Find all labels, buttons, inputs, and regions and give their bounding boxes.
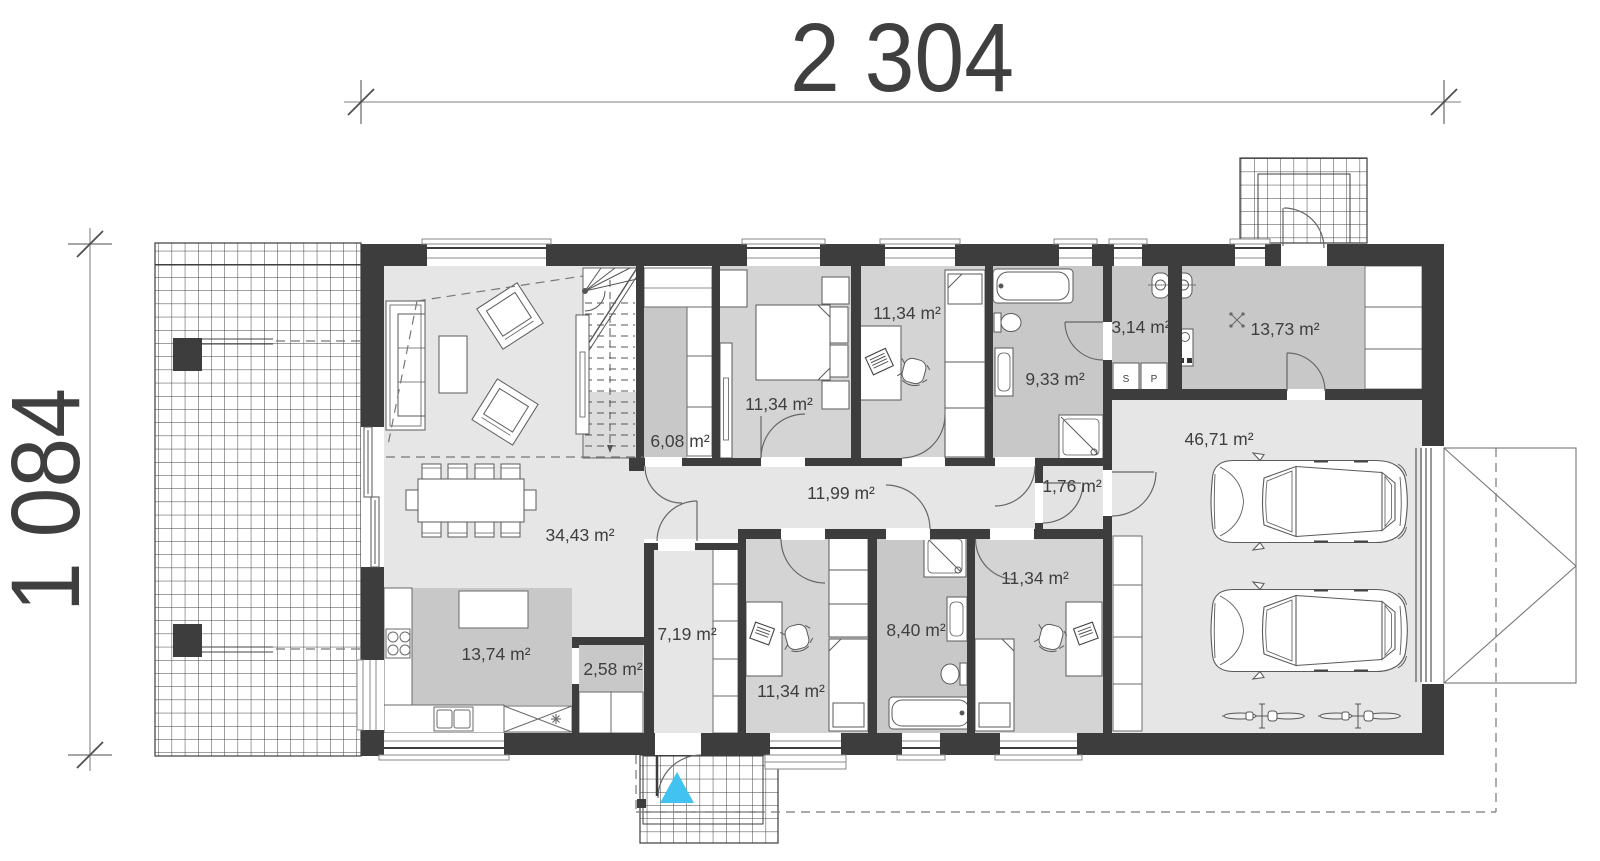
svg-text:11,34 m²: 11,34 m² — [1001, 568, 1069, 588]
svg-text:13,74 m²: 13,74 m² — [461, 644, 530, 664]
svg-text:S: S — [1123, 374, 1130, 385]
svg-text:11,34 m²: 11,34 m² — [873, 303, 941, 323]
svg-text:34,43 m²: 34,43 m² — [545, 525, 614, 545]
svg-text:11,34 m²: 11,34 m² — [757, 681, 825, 701]
svg-text:7,19 m²: 7,19 m² — [657, 624, 716, 644]
svg-text:9,33 m²: 9,33 m² — [1025, 369, 1084, 389]
svg-text:8,40 m²: 8,40 m² — [886, 620, 945, 640]
svg-text:P: P — [1151, 374, 1158, 385]
svg-text:11,99 m²: 11,99 m² — [807, 483, 875, 503]
svg-text:6,08 m²: 6,08 m² — [650, 431, 709, 451]
svg-text:2,58 m²: 2,58 m² — [583, 659, 642, 679]
svg-text:1 084: 1 084 — [0, 388, 100, 612]
svg-text:13,73 m²: 13,73 m² — [1250, 319, 1319, 339]
svg-text:1,76 m²: 1,76 m² — [1042, 476, 1101, 496]
svg-text:11,34 m²: 11,34 m² — [745, 394, 813, 414]
svg-text:46,71 m²: 46,71 m² — [1184, 429, 1253, 449]
svg-text:3,14 m²: 3,14 m² — [1111, 317, 1170, 337]
svg-text:2 304: 2 304 — [790, 3, 1014, 112]
